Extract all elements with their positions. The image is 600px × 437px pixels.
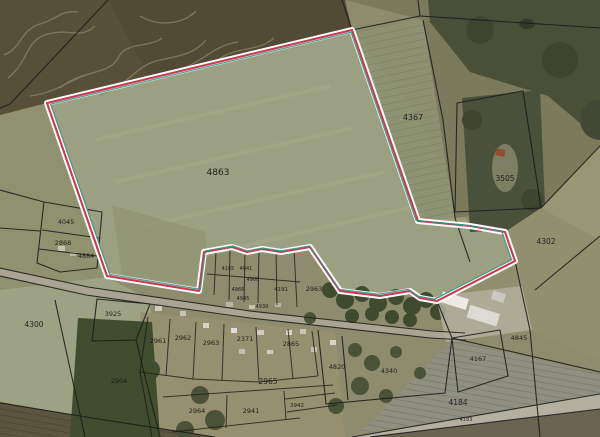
parcel-label: 2963 (203, 339, 220, 347)
parcel-label: 2865 (283, 340, 300, 348)
tree-blob (542, 42, 578, 78)
parcel-label: 3505 (495, 174, 514, 183)
house (203, 323, 209, 328)
house (226, 302, 233, 307)
parcel-label: 3925 (105, 310, 122, 318)
parcel-label: 4945 (237, 296, 250, 302)
parcel-label: 2964 (189, 407, 206, 415)
parcel-label: 4045 (58, 218, 75, 226)
parcel-label: 2904 (111, 377, 128, 385)
parcel-label: 4167 (470, 355, 487, 363)
parcel-label: 4183 (460, 417, 473, 423)
parcel-label: 4820 (329, 363, 346, 371)
parcel-label: 2868 (55, 239, 72, 247)
house (275, 303, 281, 307)
house (300, 329, 306, 334)
parcel-label: 4165 (222, 266, 235, 272)
parcel-label: 4906 (247, 277, 260, 283)
parcel-label: 4367 (403, 113, 423, 122)
parcel-label: 4184 (448, 398, 467, 407)
fields-cluster (140, 312, 345, 437)
tree-blob (462, 110, 482, 130)
parcel-label: 2963 (306, 285, 323, 293)
parcel-label: 2941 (243, 407, 260, 415)
parcel-label: 2965 (258, 377, 277, 386)
parcel-label: 4941 (240, 266, 253, 272)
house (249, 305, 255, 309)
parcel-label: 2371 (237, 335, 254, 343)
parcel-label: 4863 (207, 168, 230, 178)
parcel-label: 2962 (175, 334, 192, 342)
map-canvas[interactable]: 4863436735054302404528684884430039252961… (0, 0, 600, 437)
house (180, 311, 186, 316)
house (231, 328, 237, 333)
parcel-label: 2961 (150, 337, 167, 345)
house (330, 340, 336, 345)
parcel-label: 4300 (24, 320, 43, 329)
parcel-label: 4302 (536, 237, 555, 246)
house (155, 306, 162, 311)
house (239, 349, 245, 354)
parcel-label: 3942 (290, 403, 304, 409)
parcel-label: 4191 (274, 287, 288, 293)
parcel-label: 4966 (232, 287, 245, 293)
house (257, 330, 264, 335)
parcel-label: 4845 (511, 334, 528, 342)
parcel-label: 4939 (256, 304, 269, 310)
parcel-label: 4884 (78, 252, 95, 260)
house (267, 350, 273, 354)
parcel-label: 4340 (381, 367, 398, 375)
